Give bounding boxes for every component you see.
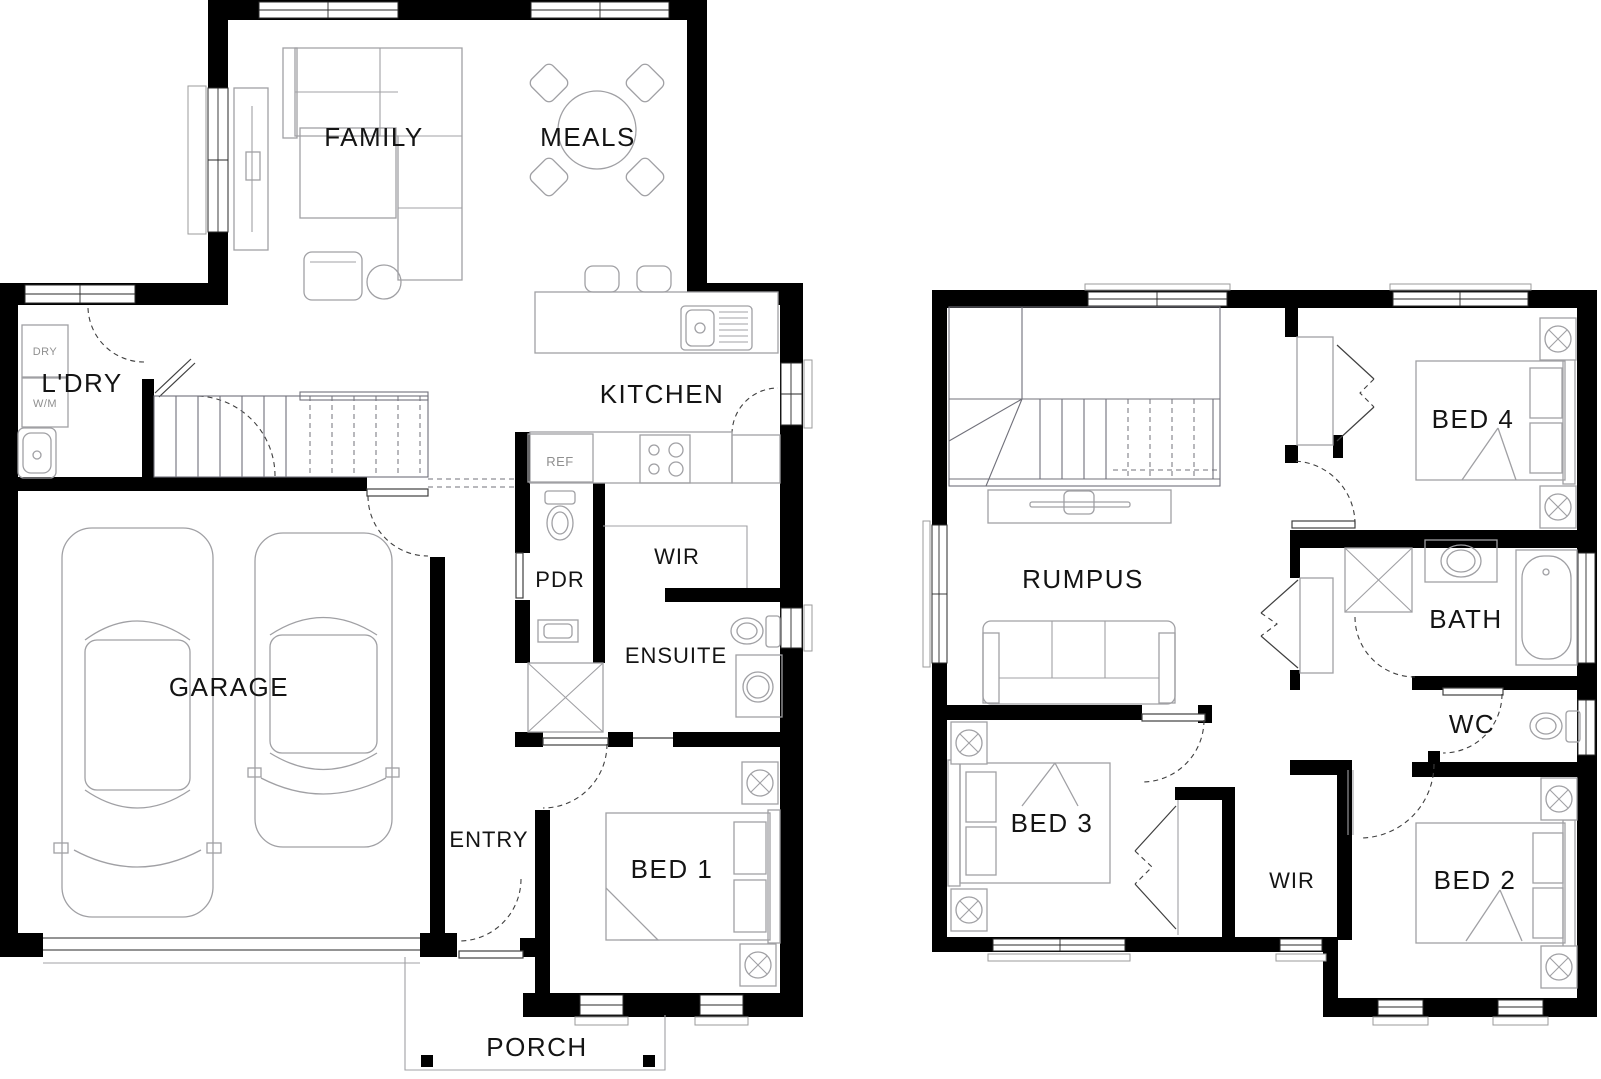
toilet (731, 616, 780, 647)
fixture-label-ref: REF (546, 454, 574, 469)
kitchen-passage-opening (732, 435, 780, 483)
fixture-label-wm: W/M (33, 398, 57, 410)
room-label-wir-upper: WIR (1269, 868, 1315, 893)
fixture-label-dry: DRY (33, 346, 58, 358)
pillow (966, 827, 996, 875)
downlight-icon (951, 889, 987, 931)
ground-labels: FAMILY MEALS KITCHEN L'DRY DRY W/M REF P… (33, 122, 727, 1062)
laundry-trough (18, 428, 56, 478)
toilet (545, 491, 575, 540)
room-label-garage: GARAGE (169, 672, 289, 702)
ground-floor-plan: FAMILY MEALS KITCHEN L'DRY DRY W/M REF P… (0, 0, 812, 1070)
downlight-icon (1540, 486, 1576, 528)
desk (988, 490, 1171, 523)
pdr-door-leaf (516, 553, 523, 598)
pillow (1533, 888, 1563, 938)
room-label-entry: ENTRY (449, 827, 528, 852)
room-label-ensuite: ENSUITE (625, 643, 727, 668)
armchair (304, 252, 362, 300)
front-door-leaf (459, 951, 523, 958)
dining-chair (624, 156, 666, 198)
stool (637, 266, 671, 292)
room-label-bed1: BED 1 (631, 854, 714, 884)
garage-cars (54, 528, 399, 917)
downlight-icon (742, 762, 778, 804)
stool (585, 266, 619, 292)
ground-stairs (154, 392, 515, 487)
room-label-porch: PORCH (486, 1032, 587, 1062)
pillow (1530, 423, 1562, 473)
pillow (966, 772, 996, 822)
upper-floor-plan: RUMPUS BED 4 BATH WC BED 3 WIR BED 2 (923, 284, 1597, 1025)
bed3-door-arc (1142, 720, 1204, 782)
tv-unit (234, 88, 268, 250)
room-label-meals: MEALS (540, 122, 636, 152)
bed-throw (1466, 890, 1522, 941)
stair-door-leaf (155, 359, 191, 393)
bath-door-arc (1355, 617, 1415, 677)
downlight-icon (951, 722, 987, 764)
toilet (1530, 711, 1580, 742)
room-label-bed3: BED 3 (1011, 808, 1094, 838)
porch-post (421, 1055, 433, 1067)
bed-headboard (948, 760, 960, 886)
floorplan-svg: FAMILY MEALS KITCHEN L'DRY DRY W/M REF P… (0, 0, 1601, 1079)
bed4-door-leaf (1292, 521, 1355, 528)
linen-cupboard (1345, 548, 1412, 612)
hall-linen-doors (1261, 578, 1333, 673)
downlight-icon (1541, 946, 1577, 988)
room-label-pdr: PDR (535, 567, 584, 592)
cooktop (640, 435, 690, 483)
downlight-icon (740, 944, 776, 986)
downlight-icon (1541, 778, 1577, 820)
pillow (734, 880, 766, 932)
room-label-wir-ground: WIR (654, 544, 700, 569)
downlight-icon (1540, 318, 1576, 360)
linen-cupboard (528, 663, 603, 732)
island-bench (535, 292, 778, 353)
sectional-sofa (283, 48, 462, 280)
dining-chair (624, 62, 666, 104)
porch-post (643, 1055, 655, 1067)
pillow (734, 822, 766, 874)
room-label-family: FAMILY (324, 122, 424, 152)
floorplan-canvas: FAMILY MEALS KITCHEN L'DRY DRY W/M REF P… (0, 0, 1601, 1079)
family-furniture (234, 48, 462, 300)
garage-internal-door-leaf (367, 489, 428, 496)
front-door-swing-arc (459, 879, 521, 941)
sofa (983, 621, 1175, 704)
dining-chair (528, 62, 570, 104)
room-label-bath: BATH (1429, 604, 1502, 634)
rumpus-furniture (983, 490, 1175, 704)
room-label-bed4: BED 4 (1432, 404, 1515, 434)
bed-throw (1022, 763, 1078, 806)
bed3-robe-doors (1135, 800, 1178, 935)
bed-throw (1462, 428, 1516, 480)
ensuite-vanity (736, 655, 782, 717)
upper-windows (923, 284, 1595, 1025)
room-label-kitchen: KITCHEN (600, 379, 725, 409)
pillow (1533, 833, 1563, 883)
garage-internal-door-arc (368, 496, 428, 556)
pillow (1530, 368, 1562, 418)
room-label-bed2: BED 2 (1434, 865, 1517, 895)
room-label-rumpus: RUMPUS (1022, 564, 1144, 594)
wc-door-leaf (1443, 688, 1503, 695)
side-table (367, 265, 401, 299)
bed1-door-arc (543, 744, 607, 808)
understair-door-arc (195, 396, 275, 476)
upper-stairs (949, 307, 1220, 486)
laundry-door-arc (88, 308, 144, 362)
bathtub (1516, 550, 1577, 665)
kitchen-door-arc (732, 388, 778, 434)
car (54, 528, 221, 917)
bed3-door-leaf (1142, 714, 1205, 721)
bed1-door-leaf (543, 738, 608, 745)
upper-labels: RUMPUS BED 4 BATH WC BED 3 WIR BED 2 (1011, 404, 1517, 895)
room-label-laundry: L'DRY (41, 368, 122, 398)
dining-chair (528, 156, 570, 198)
bed4-robe-doors (1297, 337, 1374, 445)
bed-throw (606, 888, 658, 940)
room-label-wc: WC (1449, 709, 1495, 739)
bed4-door-arc (1292, 461, 1355, 524)
ensuite-fixtures (528, 616, 782, 732)
